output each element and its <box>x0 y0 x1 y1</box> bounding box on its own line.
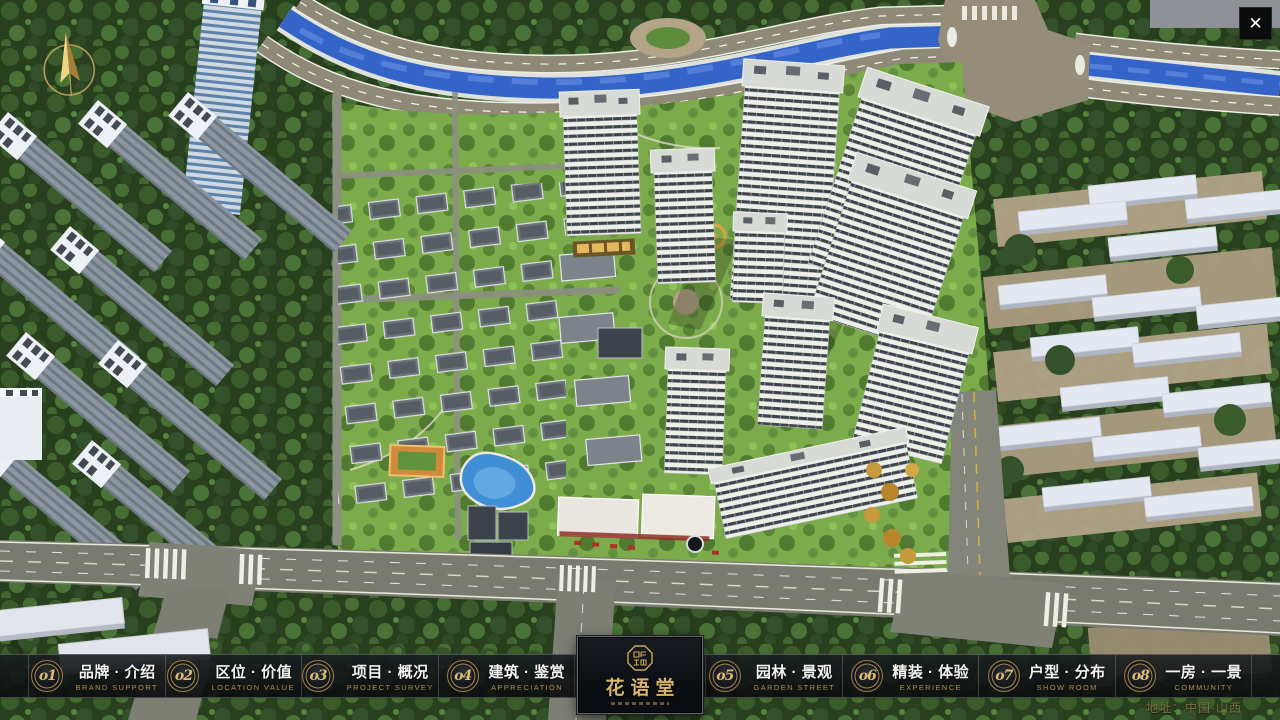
nav-item-room-views[interactable]: o8 一房 · 一景COMMUNITY <box>1115 655 1253 697</box>
lit-commercial-strip <box>573 238 636 257</box>
tower <box>754 293 834 430</box>
nav-item-project-overview[interactable]: o3 项目 · 概况PROJECT SURVEY <box>301 655 438 697</box>
nav-item-landscape[interactable]: o5 园林 · 景观GARDEN STREET <box>705 655 842 697</box>
nav-number-badge: o7 <box>988 660 1020 692</box>
nav-item-architecture[interactable]: o4 建筑 · 鉴赏APPRECIATION <box>438 655 576 697</box>
nav-label-en: APPRECIATION <box>491 683 563 691</box>
nav-label-zh: 园林 · 景观 <box>756 661 833 682</box>
nav-label-en: PROJECT SURVEY <box>347 683 434 691</box>
brand-subtitle-rule <box>611 702 669 705</box>
close-button[interactable]: ✕ <box>1239 7 1272 40</box>
kindergarten <box>389 445 444 477</box>
nav-label-en: SHOW ROOM <box>1037 683 1098 691</box>
nav-number-badge: o5 <box>709 660 741 692</box>
aerial-masterplan-render[interactable] <box>0 0 1280 720</box>
nav-label-en: GARDEN STREET <box>753 683 835 691</box>
left-corner-towers <box>0 388 42 460</box>
nav-item-interior-experience[interactable]: o6 精装 · 体验EXPERIENCE <box>842 655 979 697</box>
tower <box>559 89 644 236</box>
nav-label-en: COMMUNITY <box>1174 683 1233 691</box>
nav-label-zh: 建筑 · 鉴赏 <box>488 661 565 682</box>
nav-number-badge: o6 <box>851 660 883 692</box>
nav-number-badge: o4 <box>447 660 479 692</box>
nav-label-zh: 品牌 · 介绍 <box>79 661 156 682</box>
nav-number: o6 <box>859 668 876 684</box>
nav-label-en: BRAND SUPPORT <box>76 683 158 691</box>
nav-number: o8 <box>1132 668 1149 684</box>
nav-item-brand-intro[interactable]: o1 品牌 · 介绍BRAND SUPPORT <box>28 655 165 697</box>
nav-number-badge: o1 <box>31 660 63 692</box>
nav-number: o5 <box>716 668 733 684</box>
nav-label-zh: 区位 · 价值 <box>215 661 292 682</box>
entrance-gate-emblem <box>687 536 703 552</box>
nav-label-zh: 精装 · 体验 <box>892 661 969 682</box>
nav-label-zh: 项目 · 概况 <box>352 661 429 682</box>
app-window: ✕ o1 品牌 · 介绍BRAND SUPPORT o2 区位 · 价值LOCA… <box>0 0 1280 720</box>
nav-number: o4 <box>454 668 471 684</box>
close-icon: ✕ <box>1248 15 1262 32</box>
brand-logo-panel[interactable]: 花语堂 <box>577 636 703 714</box>
nav-number: o7 <box>995 668 1012 684</box>
nav-item-location-value[interactable]: o2 区位 · 价值LOCATION VALUE <box>165 655 302 697</box>
nav-number-badge: o8 <box>1124 660 1156 692</box>
tower <box>650 148 719 284</box>
project-address: 地址：中国·山西 <box>1146 699 1242 716</box>
tower <box>730 212 787 304</box>
nav-number: o2 <box>175 668 192 684</box>
nav-number: o3 <box>309 668 326 684</box>
nav-number-badge: o2 <box>167 660 199 692</box>
nav-item-floorplans[interactable]: o7 户型 · 分布SHOW ROOM <box>978 655 1115 697</box>
nav-label-en: EXPERIENCE <box>900 683 962 691</box>
brand-name: 花语堂 <box>599 673 680 700</box>
nav-label-zh: 一房 · 一景 <box>1165 661 1242 682</box>
nav-number: o1 <box>39 668 56 684</box>
tower <box>661 347 729 475</box>
nav-label-zh: 户型 · 分布 <box>1029 661 1106 682</box>
nav-number-badge: o3 <box>302 660 334 692</box>
brand-seal-icon <box>627 645 653 671</box>
nav-label-en: LOCATION VALUE <box>212 683 295 691</box>
